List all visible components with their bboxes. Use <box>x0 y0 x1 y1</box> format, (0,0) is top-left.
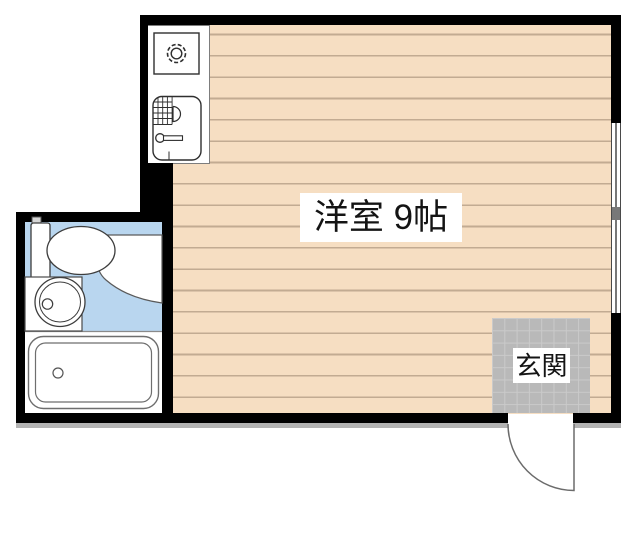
kitchen-fixtures <box>148 26 211 165</box>
floorplan: 洋室 9帖 玄関 <box>0 0 640 540</box>
wall-kitchen-left <box>140 15 148 165</box>
kitchen-unit <box>147 25 210 164</box>
main-room-label: 洋室 9帖 <box>300 193 462 242</box>
wall-shadow-left <box>16 423 508 428</box>
wall-bathroom-divider <box>162 222 173 414</box>
entry-door-icon <box>498 421 582 497</box>
stove-icon <box>154 33 199 74</box>
sliding-window-icon <box>611 123 621 313</box>
wash-basin-icon <box>25 277 85 331</box>
wall-right-lower <box>611 313 621 423</box>
window-sash-mark <box>612 207 620 220</box>
bathroom <box>25 222 162 413</box>
kitchen-sink-icon <box>153 97 201 161</box>
wall-bottom-left <box>16 413 508 423</box>
wall-left <box>16 212 25 423</box>
bathtub-icon <box>29 337 159 409</box>
wall-top <box>140 15 621 25</box>
entrance-label: 玄関 <box>513 348 570 383</box>
wall-right-upper <box>611 15 621 123</box>
